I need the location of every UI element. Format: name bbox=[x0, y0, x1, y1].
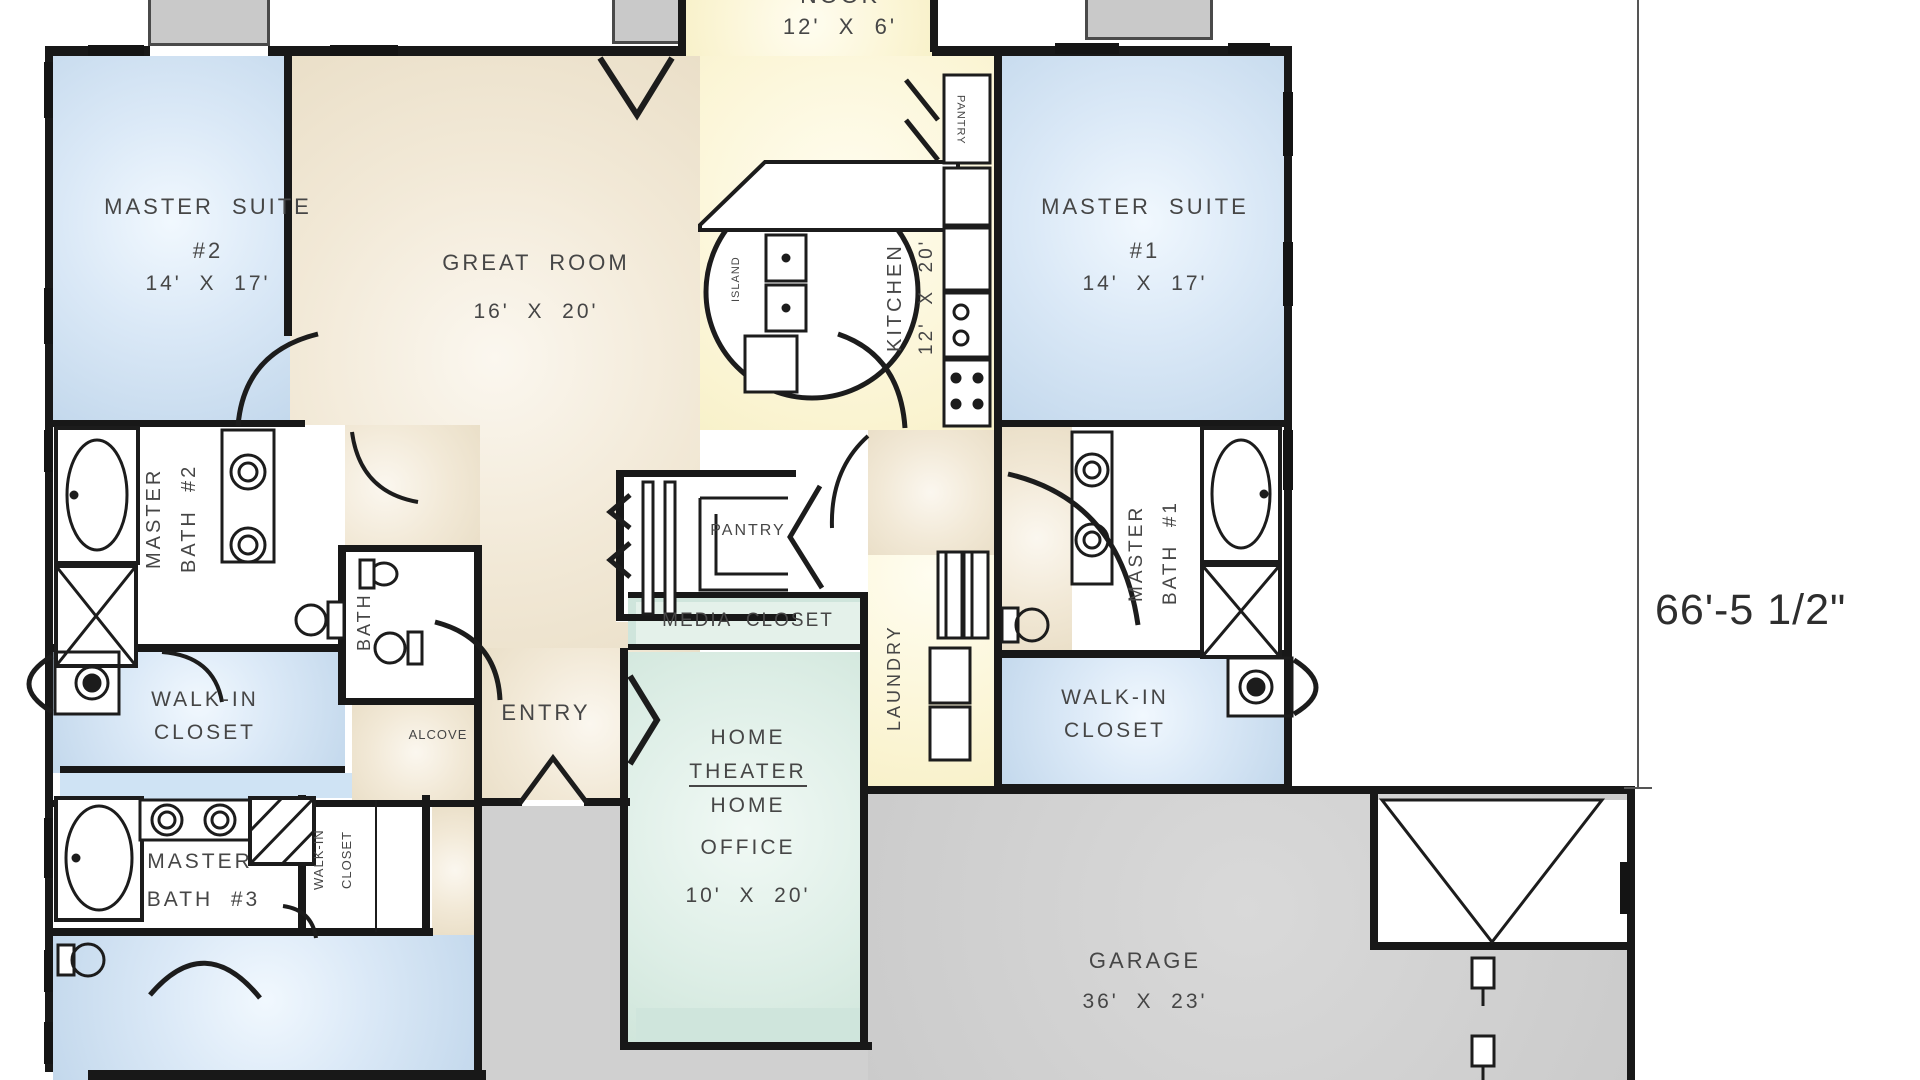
label-mb3-line2: BATH #3 bbox=[126, 888, 281, 912]
door-ms2 bbox=[238, 334, 318, 426]
wc-left-door-arc bbox=[29, 656, 52, 712]
label-wicr-line2: CLOSET bbox=[995, 719, 1235, 743]
label-dimension-right: 66'-5 1/2" bbox=[1655, 586, 1920, 635]
door-theater bbox=[630, 676, 657, 764]
label-ms2-num: #2 bbox=[88, 238, 328, 263]
label-mb2-line1: MASTER bbox=[143, 428, 166, 608]
label-great-room: GREAT ROOM bbox=[416, 250, 656, 275]
fixtures-linework bbox=[0, 0, 1920, 1080]
label-theater-line2: THEATER bbox=[689, 760, 806, 787]
label-ms1-dims: 14' X 17' bbox=[1025, 272, 1265, 296]
label-theater-line1: HOME bbox=[628, 726, 868, 750]
label-ms2-dims: 14' X 17' bbox=[88, 272, 328, 296]
washer bbox=[938, 552, 962, 638]
dryer bbox=[964, 552, 988, 638]
door-alcove bbox=[435, 622, 500, 700]
label-mb2-line2: BATH #2 bbox=[178, 420, 201, 616]
door-laundry bbox=[832, 436, 868, 528]
island-counter-top bbox=[700, 162, 958, 230]
label-ms1-num: #1 bbox=[1025, 238, 1265, 263]
label-ms1-name: MASTER SUITE bbox=[1025, 194, 1265, 219]
label-pantry-room: PANTRY bbox=[700, 522, 796, 540]
label-alcove: ALCOVE bbox=[396, 728, 480, 743]
kitchen-range bbox=[944, 360, 990, 426]
water-heater-1 bbox=[1472, 958, 1494, 988]
wc-right-door-arc bbox=[1294, 660, 1316, 714]
floor-plan-page: { "title": "house-floor-plan", "labels":… bbox=[0, 0, 1920, 1080]
door-mb2-inner bbox=[352, 432, 418, 502]
label-wic3-line2: CLOSET bbox=[340, 802, 355, 918]
pantry-cabinet-box bbox=[944, 75, 990, 163]
label-island: ISLAND bbox=[730, 243, 743, 315]
label-wicl-line2: CLOSET bbox=[85, 721, 325, 745]
pantry-shelves bbox=[700, 498, 788, 590]
label-kitchen-dims: 12' X 20' bbox=[916, 222, 938, 372]
label-garage: GARAGE bbox=[1025, 948, 1265, 973]
label-theater-dims: 10' X 20' bbox=[628, 884, 868, 908]
island-cabinet bbox=[745, 336, 797, 392]
label-nook-dims: 12' X 6' bbox=[720, 14, 960, 39]
kitchen-sink-counter bbox=[944, 293, 990, 357]
label-entry: ENTRY bbox=[486, 700, 606, 725]
label-pantry-cabinet: PANTRY bbox=[954, 80, 967, 160]
toilet-powder bbox=[375, 633, 405, 663]
water-heater-2 bbox=[1472, 1036, 1494, 1066]
label-theater-line3: HOME bbox=[628, 794, 868, 818]
label-laundry: LAUNDRY bbox=[884, 592, 905, 764]
pantry-bifold-doors bbox=[906, 80, 938, 160]
label-wic3-line1: WALK-IN bbox=[312, 802, 327, 918]
label-theater-line4: OFFICE bbox=[628, 836, 868, 860]
label-mb1-line2: BATH #1 bbox=[1160, 468, 1182, 638]
door-front-entry bbox=[520, 758, 587, 803]
label-great-room-dims: 16' X 20' bbox=[416, 300, 656, 324]
floor-plan: NOOK 12' X 6' MASTER SUITE #2 14' X 17' … bbox=[0, 0, 1920, 1080]
label-mb3-line1: MASTER bbox=[130, 850, 270, 874]
label-garage-dims: 36' X 23' bbox=[1025, 990, 1265, 1014]
label-wicr-line1: WALK-IN bbox=[995, 686, 1235, 710]
door-porch-top bbox=[600, 58, 672, 115]
label-media-closet: MEDIA CLOSET bbox=[628, 610, 868, 632]
label-kitchen: KITCHEN bbox=[884, 228, 907, 368]
label-bath: BATH bbox=[354, 572, 375, 672]
label-nook: NOOK bbox=[740, 0, 940, 8]
label-ms2-name: MASTER SUITE bbox=[88, 194, 328, 219]
pantry-left-doors bbox=[610, 495, 630, 577]
garage-bay-truss bbox=[1382, 800, 1602, 942]
label-theater-line2-wrap: THEATER bbox=[628, 760, 868, 784]
door-mb3 bbox=[150, 963, 260, 998]
dimension-line-right bbox=[1624, 0, 1652, 788]
toilet-mb2 bbox=[296, 605, 326, 635]
label-mb1-line1: MASTER bbox=[1126, 478, 1148, 628]
label-wicl-line1: WALK-IN bbox=[85, 688, 325, 712]
